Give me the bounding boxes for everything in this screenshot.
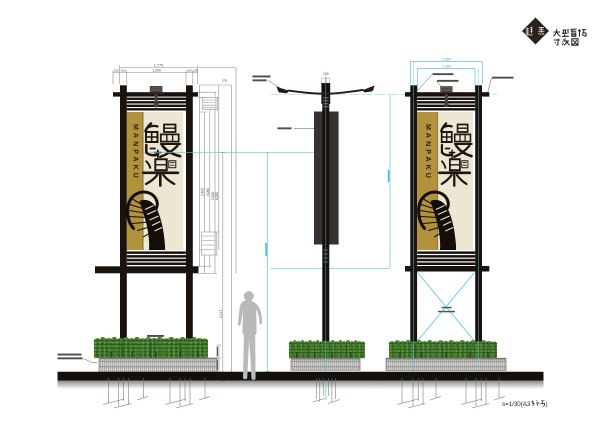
svg-text:1,500: 1,500 <box>442 57 451 61</box>
svg-text:3,060: 3,060 <box>206 188 210 196</box>
svg-text:1,770: 1,770 <box>154 63 164 67</box>
svg-text:150: 150 <box>193 69 198 73</box>
svg-text:s=1/30(A3: s=1/30(A3 <box>502 401 531 408</box>
svg-text:150: 150 <box>121 69 126 73</box>
svg-text:6,000: 6,000 <box>215 192 219 200</box>
svg-text:(75): (75) <box>222 79 227 83</box>
svg-text:MANPAKU: MANPAKU <box>424 124 431 181</box>
svg-text:1,300: 1,300 <box>442 64 451 68</box>
svg-text:MANPAKU: MANPAKU <box>132 124 139 181</box>
svg-text:2,117: 2,117 <box>219 310 223 318</box>
svg-text:2,400: 2,400 <box>201 188 205 196</box>
svg-text:150: 150 <box>114 69 119 73</box>
svg-text:): ) <box>546 401 548 408</box>
svg-text:150: 150 <box>187 69 192 73</box>
svg-text:1,200: 1,200 <box>152 69 161 73</box>
